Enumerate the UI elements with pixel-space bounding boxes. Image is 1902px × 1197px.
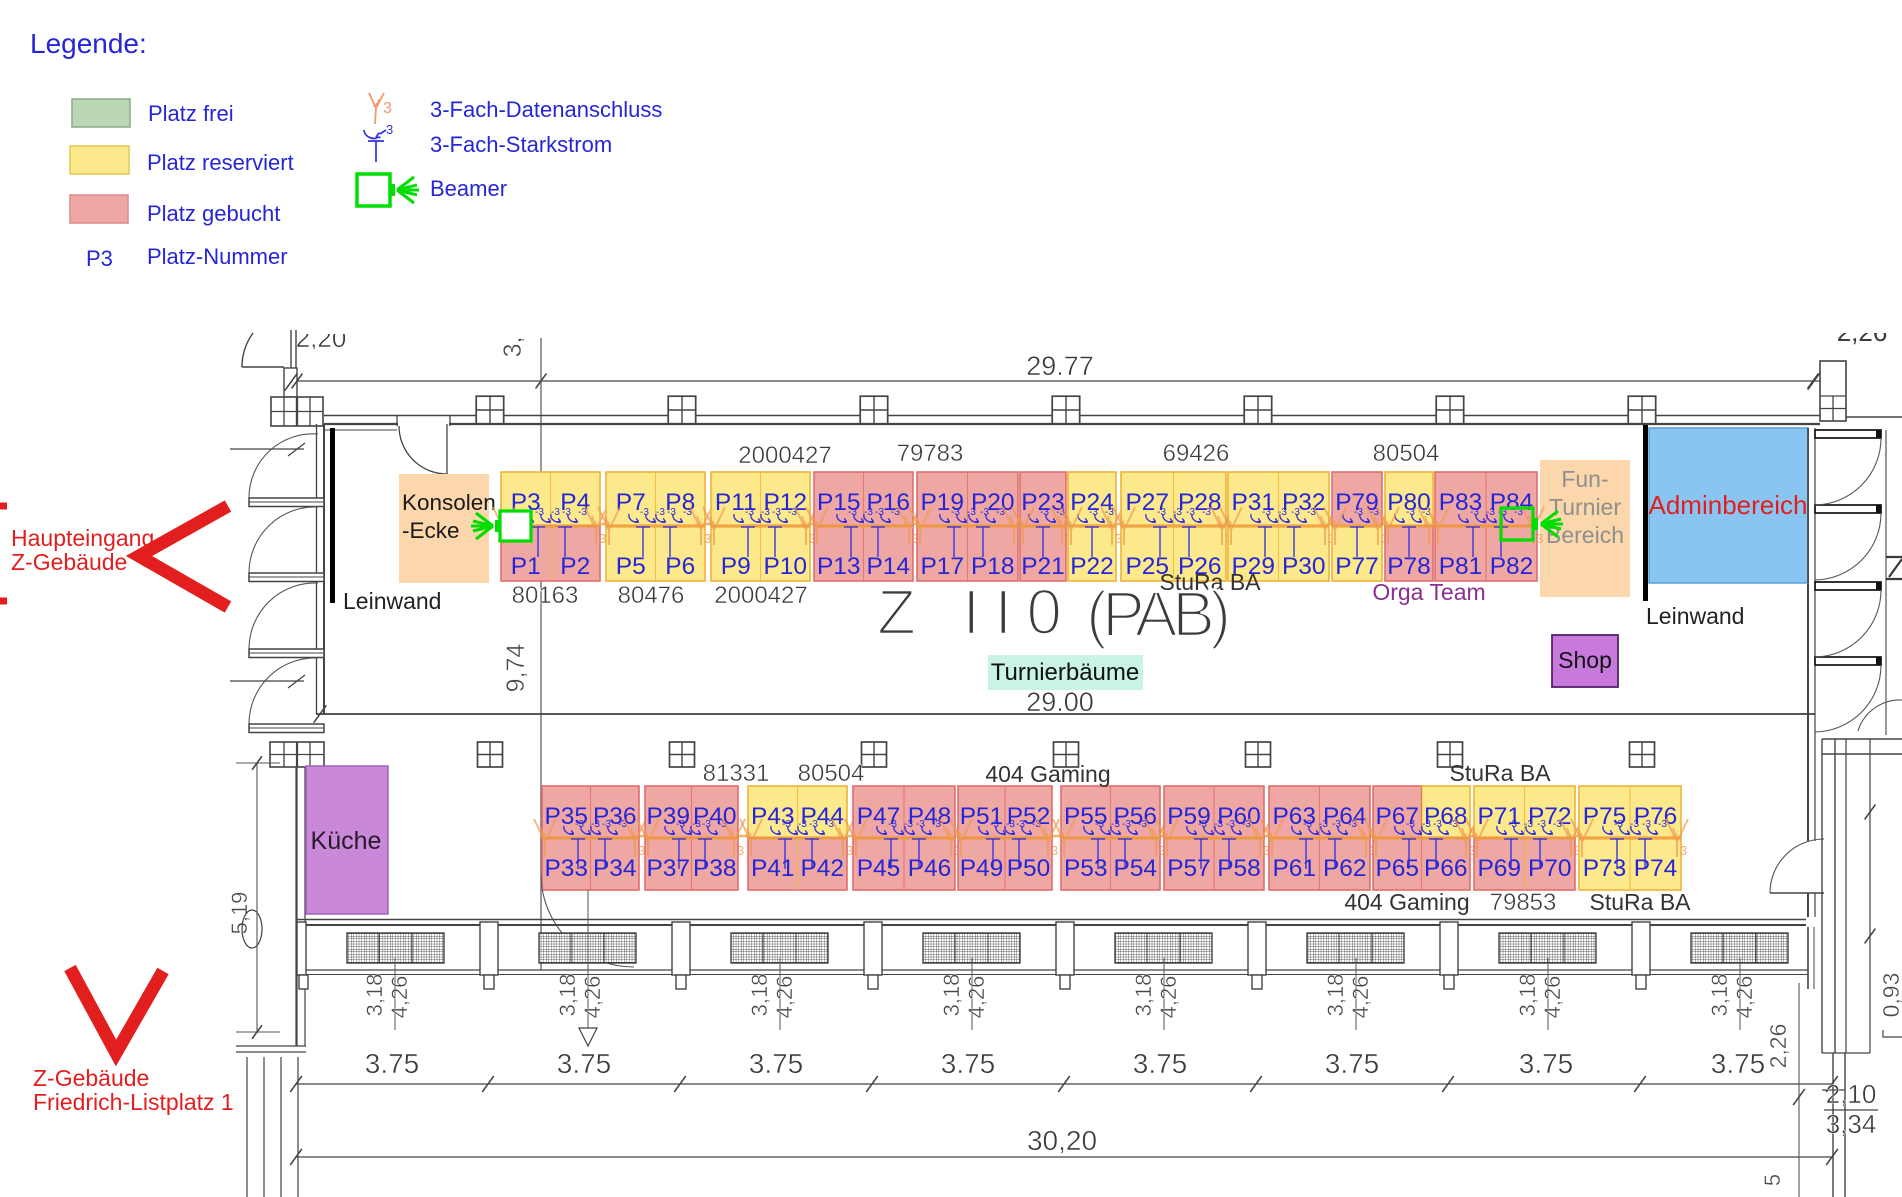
svg-text:2,10: 2,10 — [1826, 1079, 1877, 1109]
svg-text:P61: P61 — [1272, 855, 1316, 882]
svg-text:P70: P70 — [1528, 855, 1572, 882]
svg-text:5,19: 5,19 — [227, 892, 252, 935]
svg-text:P16: P16 — [866, 489, 910, 516]
svg-text:3,18: 3,18 — [555, 974, 580, 1017]
svg-text:Friedrich-Listplatz 1: Friedrich-Listplatz 1 — [33, 1089, 234, 1115]
svg-text:P66: P66 — [1424, 855, 1468, 882]
svg-text:69426: 69426 — [1163, 440, 1230, 467]
svg-text:3.75: 3.75 — [365, 1048, 420, 1079]
svg-text:30,20: 30,20 — [1027, 1125, 1097, 1156]
svg-text:3.75: 3.75 — [1133, 1048, 1188, 1079]
svg-text:P1: P1 — [511, 553, 541, 580]
svg-text:Z-Gebäude: Z-Gebäude — [33, 1065, 149, 1091]
svg-text:29.77: 29.77 — [1026, 351, 1094, 381]
svg-text:3.75: 3.75 — [941, 1048, 996, 1079]
svg-text:P33: P33 — [544, 855, 588, 882]
svg-text:Küche: Küche — [311, 827, 382, 855]
svg-text:3,18: 3,18 — [747, 974, 772, 1017]
svg-text:P37: P37 — [646, 855, 690, 882]
svg-text:4,26: 4,26 — [964, 976, 989, 1019]
svg-text:P54: P54 — [1113, 855, 1157, 882]
svg-text:P46: P46 — [908, 855, 952, 882]
svg-text:P64: P64 — [1323, 803, 1367, 830]
svg-text:P74: P74 — [1634, 855, 1678, 882]
svg-text:P34: P34 — [593, 855, 637, 882]
svg-text:2000427: 2000427 — [738, 442, 831, 469]
svg-text:3,18: 3,18 — [1131, 974, 1156, 1017]
svg-text:3.75: 3.75 — [749, 1048, 804, 1079]
svg-text:P41: P41 — [751, 855, 795, 882]
svg-text:P76: P76 — [1634, 803, 1678, 830]
svg-text:80476: 80476 — [618, 582, 685, 609]
svg-text:3,18: 3,18 — [1707, 974, 1732, 1017]
svg-text:Platz gebucht: Platz gebucht — [147, 201, 280, 226]
svg-text:(PAB): (PAB) — [1086, 578, 1231, 650]
svg-text:P3: P3 — [86, 246, 113, 271]
svg-text:P5: P5 — [616, 553, 646, 580]
svg-text:0,93: 0,93 — [1878, 973, 1902, 1018]
svg-text:4,26: 4,26 — [387, 976, 412, 1019]
svg-text:Beamer: Beamer — [430, 176, 507, 201]
svg-text:P45: P45 — [857, 855, 901, 882]
svg-text:P53: P53 — [1064, 855, 1108, 882]
svg-text:P13: P13 — [817, 553, 861, 580]
svg-text:P73: P73 — [1583, 855, 1627, 882]
svg-text:Z-Gebäude: Z-Gebäude — [11, 549, 127, 575]
svg-text:P9: P9 — [721, 553, 751, 580]
svg-text:P81: P81 — [1439, 553, 1483, 580]
svg-text:3.75: 3.75 — [1711, 1048, 1766, 1079]
svg-text:4,26: 4,26 — [1540, 976, 1565, 1019]
svg-text:3,18: 3,18 — [1323, 974, 1348, 1017]
svg-text:P28: P28 — [1178, 489, 1222, 516]
svg-text:P57: P57 — [1167, 855, 1211, 882]
svg-text:StuRa BA: StuRa BA — [1450, 760, 1552, 786]
svg-text:P82: P82 — [1490, 553, 1534, 580]
svg-text:-Ecke: -Ecke — [402, 518, 460, 543]
svg-text:3,34: 3,34 — [1826, 1109, 1877, 1139]
svg-text:P77: P77 — [1335, 553, 1379, 580]
svg-text:Platz reserviert: Platz reserviert — [147, 150, 294, 175]
svg-text:P2: P2 — [560, 553, 590, 580]
svg-text:4,26: 4,26 — [1732, 976, 1757, 1019]
svg-text:4,26: 4,26 — [1348, 976, 1373, 1019]
svg-text:P78: P78 — [1387, 553, 1431, 580]
svg-text:Konsolen: Konsolen — [402, 490, 496, 515]
svg-text:3.75: 3.75 — [557, 1048, 612, 1079]
svg-text:P30: P30 — [1282, 553, 1326, 580]
svg-text:P42: P42 — [800, 855, 844, 882]
svg-text:P12: P12 — [763, 489, 807, 516]
svg-text:P38: P38 — [693, 855, 737, 882]
svg-text:3.75: 3.75 — [1519, 1048, 1574, 1079]
svg-text:P6: P6 — [665, 553, 695, 580]
svg-text:Z II0: Z II0 — [877, 576, 1062, 648]
svg-text:P65: P65 — [1375, 855, 1419, 882]
svg-text:Platz frei: Platz frei — [148, 101, 234, 126]
svg-text:Adminbereich: Adminbereich — [1649, 490, 1808, 520]
svg-text:3: 3 — [386, 122, 393, 137]
svg-text:P48: P48 — [908, 803, 952, 830]
svg-text:StuRa BA: StuRa BA — [1590, 889, 1692, 915]
svg-text:3,18: 3,18 — [362, 974, 387, 1017]
svg-text:Fun-: Fun- — [1561, 466, 1608, 492]
svg-text:P72: P72 — [1528, 803, 1572, 830]
svg-text:404 Gaming: 404 Gaming — [985, 761, 1110, 787]
svg-text:3-Fach-Datenanschluss: 3-Fach-Datenanschluss — [430, 97, 662, 122]
svg-text:Shop: Shop — [1558, 647, 1612, 673]
svg-text:4,26: 4,26 — [580, 976, 605, 1019]
svg-text:Turnierbäume: Turnierbäume — [991, 659, 1140, 686]
svg-text:2000427: 2000427 — [714, 582, 807, 609]
svg-text:Leinwand: Leinwand — [343, 588, 441, 614]
svg-text:P84: P84 — [1490, 489, 1534, 516]
svg-text:P50: P50 — [1007, 855, 1051, 882]
svg-text:9,74: 9,74 — [502, 644, 530, 693]
svg-text:P44: P44 — [800, 803, 844, 830]
svg-text:4,26: 4,26 — [1156, 976, 1181, 1019]
svg-text:Turnier: Turnier — [1549, 494, 1621, 520]
svg-text:P49: P49 — [960, 855, 1004, 882]
svg-text:3.75: 3.75 — [1325, 1048, 1380, 1079]
svg-text:P56: P56 — [1113, 803, 1157, 830]
svg-text:P20: P20 — [971, 489, 1015, 516]
svg-text:3-Fach-Starkstrom: 3-Fach-Starkstrom — [430, 132, 612, 157]
svg-text:81331: 81331 — [703, 760, 770, 787]
svg-text:P60: P60 — [1217, 803, 1261, 830]
svg-text:404 Gaming: 404 Gaming — [1344, 889, 1469, 915]
svg-text:3,: 3, — [499, 337, 527, 358]
svg-text:2,26: 2,26 — [1765, 1024, 1791, 1069]
svg-text:80504: 80504 — [1373, 440, 1440, 467]
svg-text:4,26: 4,26 — [772, 976, 797, 1019]
svg-text:80504: 80504 — [798, 760, 865, 787]
svg-text:P58: P58 — [1217, 855, 1261, 882]
svg-text:3: 3 — [383, 100, 392, 117]
svg-text:Platz-Nummer: Platz-Nummer — [147, 244, 288, 269]
svg-text:P32: P32 — [1282, 489, 1326, 516]
svg-text:P69: P69 — [1477, 855, 1521, 882]
svg-text:79853: 79853 — [1490, 889, 1557, 916]
svg-text:P10: P10 — [763, 553, 807, 580]
svg-text:3,18: 3,18 — [939, 974, 964, 1017]
svg-text:Legende:: Legende: — [30, 28, 147, 59]
svg-text:5: 5 — [1760, 1174, 1785, 1186]
svg-text:P62: P62 — [1323, 855, 1367, 882]
svg-text:29.00: 29.00 — [1026, 687, 1094, 717]
svg-text:Orga Team: Orga Team — [1372, 579, 1485, 605]
svg-text:80163: 80163 — [512, 582, 579, 609]
svg-text:79783: 79783 — [897, 440, 964, 467]
svg-text:Haupteingang: Haupteingang — [11, 525, 154, 551]
svg-text:3,18: 3,18 — [1515, 974, 1540, 1017]
svg-text:P22: P22 — [1070, 553, 1114, 580]
svg-text:Leinwand: Leinwand — [1646, 603, 1744, 629]
